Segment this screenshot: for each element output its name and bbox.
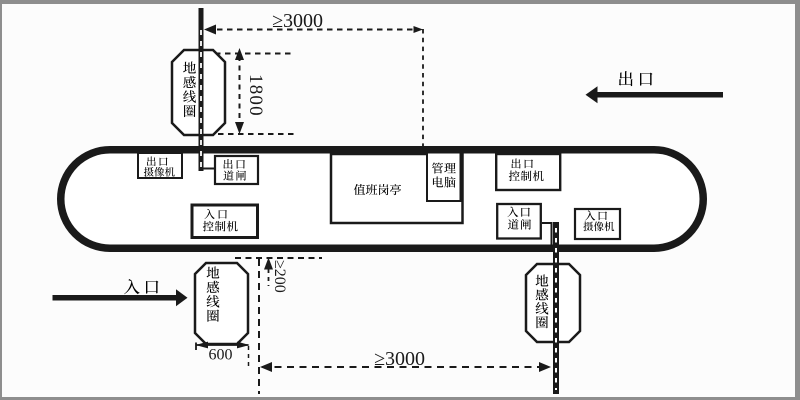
svg-text:≥200: ≥200 [271,260,288,293]
svg-text:600: 600 [209,347,233,364]
svg-text:≥3000: ≥3000 [272,10,323,32]
svg-text:≥3000: ≥3000 [374,348,425,370]
svg-text:1800: 1800 [245,74,266,117]
